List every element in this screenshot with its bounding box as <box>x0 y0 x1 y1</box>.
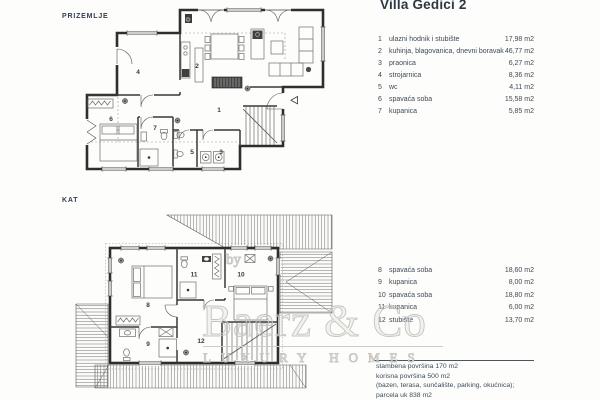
floorplan-sheet: 1 2 3 4 5 6 7 <box>0 0 600 400</box>
legend-room-name: strojarnica <box>389 72 509 79</box>
legend-room-number: 9 <box>378 279 389 286</box>
toilet <box>124 349 130 356</box>
summary-block: stambena površina 170 m2 korisna površin… <box>376 362 514 400</box>
legend-room-number: 6 <box>378 96 389 103</box>
legend-room-area: 5,85 m2 <box>509 108 534 115</box>
legend-row: 1ulazni hodnik i stubište17,98 m2 <box>378 33 534 45</box>
sink <box>124 331 130 335</box>
stairs <box>243 106 277 145</box>
dining-table <box>211 34 238 59</box>
legend-room-name: spavaća soba <box>389 96 505 103</box>
legend-room-name: praonica <box>389 60 509 67</box>
legend-room-area: 18,60 m2 <box>505 267 534 274</box>
room-number-1: 1 <box>217 107 221 114</box>
legend-row: 3praonica6,27 m2 <box>378 57 534 69</box>
legend-room-number: 8 <box>378 267 389 274</box>
legend-row: 5wc4,11 m2 <box>378 81 534 93</box>
room-number-3: 3 <box>219 149 223 156</box>
outer-walls <box>87 10 323 169</box>
toilet <box>181 260 187 267</box>
legend-row: 6spavaća soba15,58 m2 <box>378 93 534 105</box>
ground-floor-plan: 1 2 3 4 5 6 7 <box>84 7 325 172</box>
legend-room-area: 15,58 m2 <box>505 96 534 103</box>
room-number-2: 2 <box>195 63 199 70</box>
legend-room-name: kuhinja, blagovanica, dnevni boravak <box>389 48 505 55</box>
bed <box>132 266 172 298</box>
legend-room-area: 17,98 m2 <box>505 36 534 43</box>
room-number-8: 8 <box>146 302 150 309</box>
legend-row: 2kuhinja, blagovanica, dnevni boravak46,… <box>378 45 534 57</box>
upper-floor-label: KAT <box>62 197 78 204</box>
ground-floor-legend: 1ulazni hodnik i stubište17,98 m2 2kuhin… <box>378 33 534 117</box>
room-number-5: 5 <box>190 149 194 156</box>
bed <box>100 124 137 161</box>
watermark-by: by <box>226 252 241 269</box>
summary-line: parcela uk 838 m2 <box>376 391 514 400</box>
room-number-4: 4 <box>136 69 140 76</box>
legend-room-name: ulazni hodnik i stubište <box>389 36 505 43</box>
legend-room-number: 4 <box>378 72 389 79</box>
legend-room-name: kupanica <box>389 108 509 115</box>
legend-room-name: kupanica <box>389 279 509 286</box>
legend-room-area: 4,11 m2 <box>509 84 534 91</box>
watermark-tagline: LUXURY HOMES <box>203 350 425 366</box>
legend-room-number: 3 <box>378 60 389 67</box>
legend-room-area: 6,00 m2 <box>509 304 534 311</box>
legend-room-number: 5 <box>378 84 389 91</box>
ground-furniture <box>88 14 313 166</box>
legend-room-name: wc <box>389 84 509 91</box>
legend-room-number: 7 <box>378 108 389 115</box>
legend-row: 8spavaća soba18,60 m2 <box>378 264 534 277</box>
entry-arrow <box>291 97 298 104</box>
summary-line: (bazen, terasa, sunčalište, parking, oku… <box>376 381 514 391</box>
ground-floor-label: PRIZEMLJE <box>62 13 108 20</box>
room-number-9: 9 <box>146 341 150 348</box>
legend-row: 9kupanica8,00 m2 <box>378 277 534 290</box>
legend-room-area: 13,70 m2 <box>505 317 534 324</box>
watermark-rule <box>203 346 443 347</box>
legend-room-number: 2 <box>378 48 389 55</box>
room-number-11: 11 <box>191 272 198 279</box>
summary-line: korisna površina 500 m2 <box>376 372 514 382</box>
sofa <box>299 27 313 63</box>
legend-room-area: 8,00 m2 <box>509 279 534 286</box>
ground-room-numbers: 1 2 3 4 5 6 7 <box>109 63 223 156</box>
legend-room-name: spavaća soba <box>389 267 505 274</box>
legend-room-area: 18,80 m2 <box>505 292 534 299</box>
sink <box>204 257 209 260</box>
legend-room-number: 1 <box>378 36 389 43</box>
room-number-7: 7 <box>153 125 157 132</box>
legend-room-area: 46,77 m2 <box>505 48 534 55</box>
room-number-10: 10 <box>237 272 245 279</box>
page-title: Villa Gedici 2 <box>380 0 467 12</box>
room-number-6: 6 <box>109 116 113 123</box>
legend-row: 4strojarnica8,36 m2 <box>378 69 534 81</box>
legend-room-area: 8,36 m2 <box>509 72 534 79</box>
watermark-logo: Baerz & Co <box>202 295 427 347</box>
sink <box>177 152 183 157</box>
legend-room-area: 6,27 m2 <box>509 60 534 67</box>
legend-row: 7kupanica5,85 m2 <box>378 105 534 117</box>
